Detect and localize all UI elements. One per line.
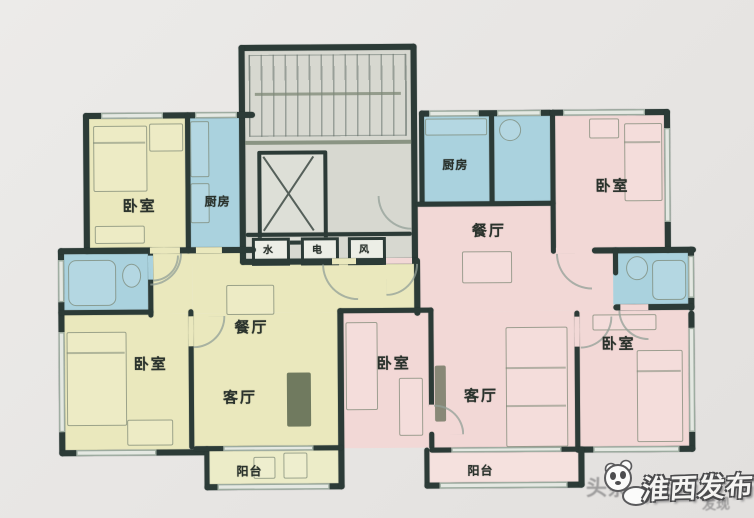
wardrobe-sketch [149,123,183,151]
bed-sketch [93,126,147,192]
wall-segment [550,110,556,254]
staircase-icon [249,54,408,137]
bed-sketch [67,332,128,426]
door-gap [196,247,222,253]
toilet-sketch [122,264,141,288]
tv-cabinet-icon [287,372,311,426]
wall-segment [419,111,425,206]
window-marker [440,482,568,489]
bed-pillow-line [624,141,660,143]
wall-segment [410,44,418,264]
room-label-right-bedroom-bottom: 卧室 [602,333,636,354]
bed-sketch [637,350,684,442]
wall-segment [58,310,153,316]
room-label-left-balcony: 阳台 [236,462,262,479]
washer-sketch [283,452,307,478]
wardrobe-sketch [127,419,173,445]
bathtub-sketch [652,260,686,300]
wall-segment [613,247,618,275]
shaft-label-electric: 电 [312,241,322,256]
shaft-label-vent: 风 [359,241,369,256]
bed-sketch [624,123,663,201]
room-label-right-bedroom-top: 卧室 [595,175,629,196]
window-marker [497,110,541,116]
wall-segment [337,308,344,489]
window-marker [563,109,645,116]
nightstand-sketch [589,118,619,138]
room-label-right-dining: 餐厅 [472,220,506,241]
shaft-label-water: 水 [263,241,273,256]
window-marker [218,483,330,490]
window-marker [451,447,561,453]
room-label-right-bedroom-mid: 卧室 [377,352,411,373]
room-label-right-living: 客厅 [464,385,498,406]
dining-table-sketch [462,251,512,283]
desk-sketch [399,378,423,436]
window-marker [195,112,237,118]
room-label-right-kitchen: 厨房 [442,156,468,173]
wall-segment [239,44,417,51]
room-label-right-balcony: 阳台 [467,462,493,479]
bed-pillow-line [637,370,681,372]
wall-segment [83,113,90,254]
elevator-x-icon [261,154,316,232]
door-gap [574,317,579,347]
room-label-left-bedroom-main: 卧室 [134,353,168,374]
room-label-left-kitchen: 厨房 [205,193,231,210]
window-marker [101,112,163,118]
kitchen-counter-sketch [425,118,487,135]
wall-segment [592,247,696,254]
window-marker [76,450,156,457]
dining-table-sketch [226,285,274,315]
basin-sketch [499,119,521,141]
wall-segment [58,248,153,255]
wall-segment [337,308,433,314]
window-marker [664,128,671,222]
sofa-sketch [505,327,568,447]
room-label-left-living: 客厅 [223,386,257,407]
window-marker [59,332,66,432]
room-label-left-dining: 餐厅 [234,316,268,337]
watermark-front-text: 淮西发布 [641,464,754,507]
wall-segment [416,201,556,207]
window-marker [688,256,694,298]
wall-segment [489,114,495,205]
window-marker [429,110,479,116]
elevator-icon [257,150,328,244]
dresser-sketch [95,226,145,244]
window-marker [688,328,695,432]
floor-plan-photo: 卧室 厨房 卧室 餐厅 客厅 阳台 厨房 餐厅 卧室 卧室 客厅 卧室 阳台 水… [0,0,754,518]
bathtub-sketch [68,260,116,306]
room-label-left-bedroom-top: 卧室 [123,195,157,216]
kitchen-counter-sketch [190,121,209,177]
window-marker [223,445,313,451]
toilet-sketch [626,256,648,280]
wall-segment [428,308,434,408]
window-marker [58,260,64,302]
floor-plan: 卧室 厨房 卧室 餐厅 客厅 阳台 厨房 餐厅 卧室 卧室 客厅 卧室 阳台 水… [0,0,754,518]
bed-sketch [345,322,378,410]
watermark: 头条 发现 淮西发布 [580,450,754,518]
